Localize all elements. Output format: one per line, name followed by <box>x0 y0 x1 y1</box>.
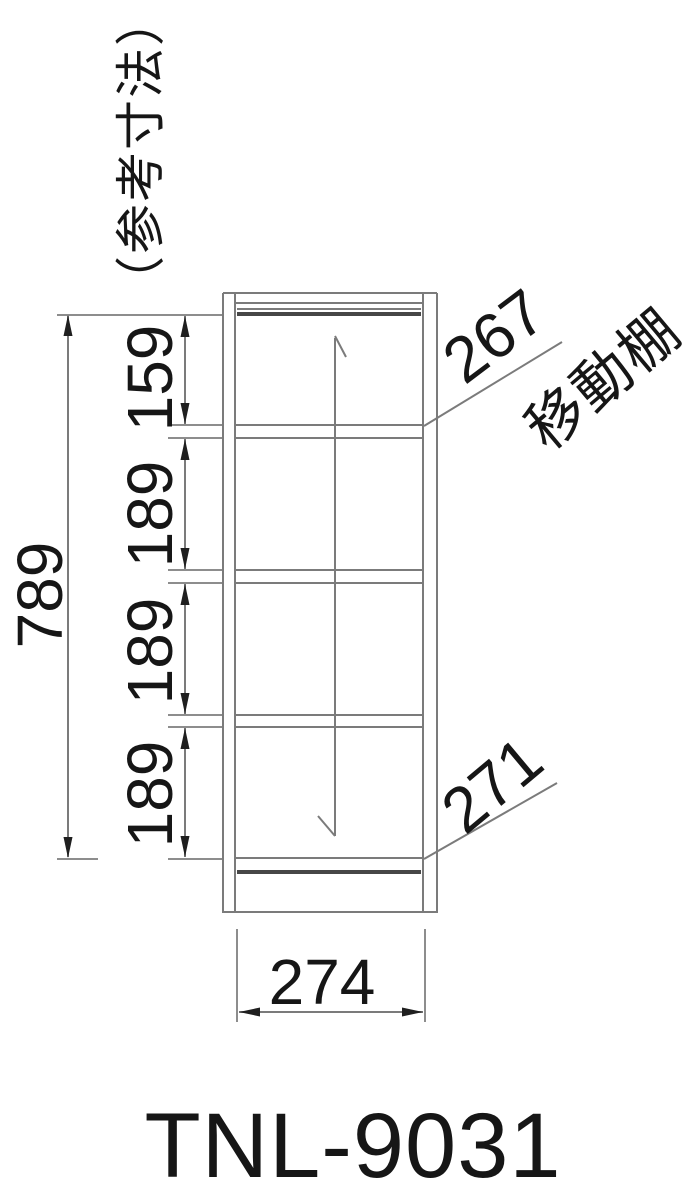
shelf-dimension-diagram: （参考寸法） 789 159 189 189 189 267 移動棚 271 2… <box>0 0 700 1195</box>
cabinet-outline <box>223 293 437 913</box>
reference-note: （参考寸法） <box>116 0 166 306</box>
shelf-lines <box>235 425 423 727</box>
dim-section-4: 189 <box>118 741 182 848</box>
dim-section-2: 189 <box>118 461 182 568</box>
extension-lines <box>57 315 425 1022</box>
dim-section-3: 189 <box>118 598 182 705</box>
adjustable-range-arrow <box>318 336 346 836</box>
dim-overall-height: 789 <box>8 542 72 649</box>
dim-section-top: 159 <box>118 325 182 432</box>
dim-overall-width: 274 <box>269 950 376 1014</box>
top-bottom-rails <box>237 314 421 872</box>
model-number: TNL-9031 <box>144 1100 561 1192</box>
